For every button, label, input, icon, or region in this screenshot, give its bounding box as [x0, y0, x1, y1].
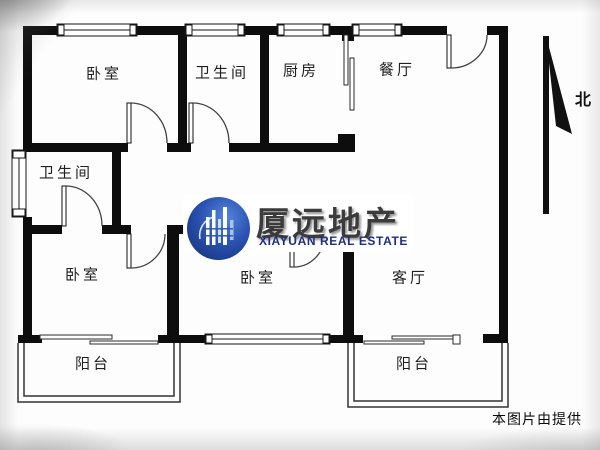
- window: [352, 24, 402, 36]
- wall-segment: [338, 134, 355, 152]
- wall-segment: [158, 335, 205, 343]
- sliding-door-panel: [90, 341, 158, 344]
- room-label-balcony-left: 阳台: [75, 353, 111, 374]
- wall-segment: [229, 143, 338, 152]
- room-label-bathroom-top: 卫生间: [195, 62, 249, 83]
- buildings-glyph: [187, 197, 250, 260]
- wall-segment: [167, 225, 179, 340]
- room-label-bedroom-bottom-middle: 卧室: [240, 267, 276, 288]
- door-leaf: [62, 186, 66, 226]
- floorplan-image: 厦远地产 XIAYUAN REAL ESTATE 卧室 卫生间 厨房 餐厅 卫生…: [0, 0, 600, 450]
- wall-segment: [137, 26, 185, 35]
- door-arc: [131, 103, 167, 143]
- sliding-door-panel: [40, 335, 112, 339]
- room-label-bedroom-bottom-left: 卧室: [65, 264, 101, 285]
- door-leaf: [127, 234, 131, 268]
- door-leaf: [189, 103, 193, 143]
- door-arc: [451, 35, 487, 68]
- room-label-balcony-right: 阳台: [396, 353, 432, 374]
- door-arc: [131, 234, 165, 268]
- door-arc: [193, 103, 229, 143]
- room-label-living-room: 客厅: [392, 267, 428, 288]
- brand-name-en: XIAYUAN REAL ESTATE: [259, 234, 408, 248]
- window: [205, 334, 330, 344]
- brand-logo-icon: [187, 197, 250, 260]
- sliding-door-panel: [453, 335, 460, 344]
- wall-segment: [245, 26, 277, 35]
- wall-segment: [23, 225, 62, 234]
- wall-segment: [167, 143, 191, 152]
- wall-segment: [23, 26, 32, 150]
- window: [185, 24, 245, 36]
- window: [12, 150, 26, 217]
- wall-segment: [112, 143, 121, 233]
- image-credit: 本图片由提供: [492, 409, 582, 429]
- window: [57, 24, 137, 36]
- door-leaf: [447, 35, 451, 68]
- wall-segment: [260, 35, 269, 143]
- north-label: 北: [575, 86, 591, 110]
- door-leaf: [127, 103, 131, 143]
- sliding-door-panel: [392, 336, 454, 339]
- wall-segment: [23, 217, 32, 343]
- north-arrow-icon: [543, 36, 572, 214]
- sliding-door-panel: [344, 35, 348, 85]
- window: [277, 24, 330, 36]
- wall-segment: [102, 225, 131, 234]
- wall-segment: [330, 335, 363, 343]
- wall-segment: [483, 334, 508, 343]
- sliding-door-panel: [350, 58, 354, 110]
- wall-segment: [18, 335, 42, 343]
- room-label-kitchen: 厨房: [283, 60, 319, 81]
- room-label-dining-room: 餐厅: [379, 59, 415, 80]
- wall-segment: [178, 35, 187, 143]
- wall-segment: [402, 26, 447, 35]
- room-label-bathroom-left: 卫生间: [39, 162, 93, 183]
- sliding-door-panel: [364, 341, 424, 344]
- wall-segment: [499, 26, 508, 343]
- room-label-bedroom-top-left: 卧室: [86, 63, 122, 84]
- door-arc: [66, 186, 102, 226]
